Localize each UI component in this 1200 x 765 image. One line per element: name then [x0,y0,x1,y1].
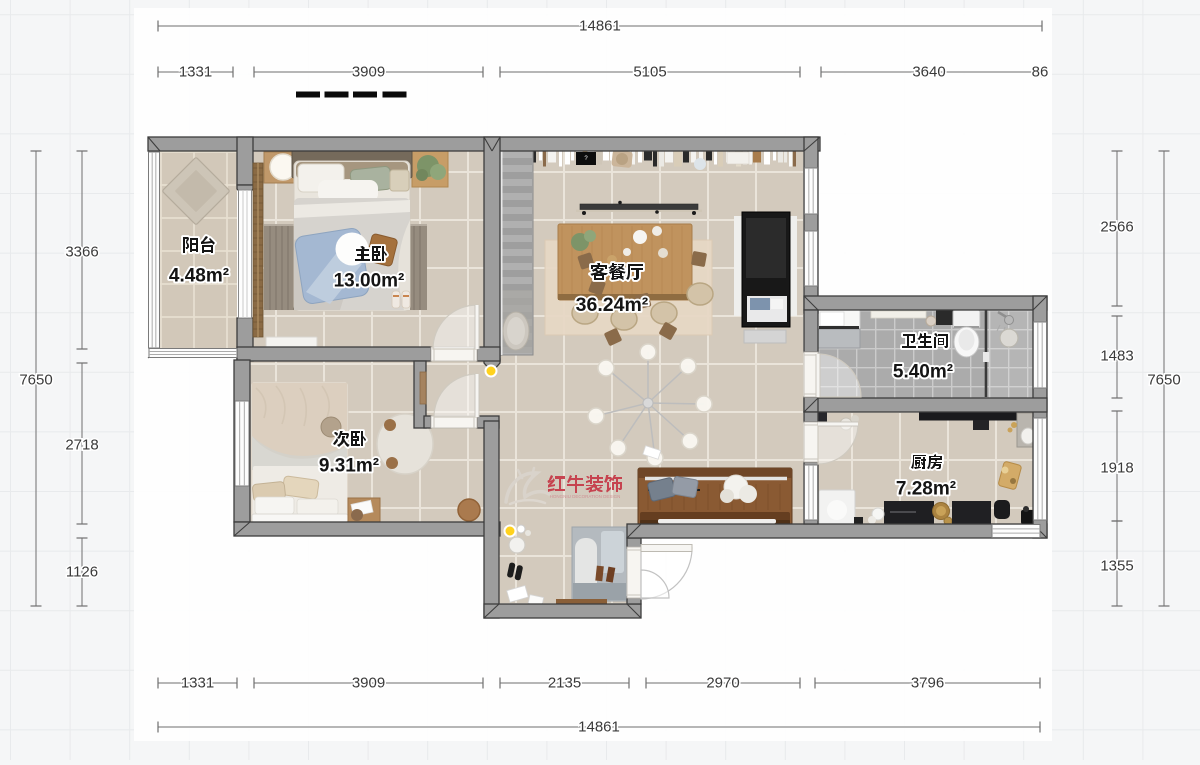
svg-text:7.28m²: 7.28m² [896,479,956,500]
svg-text:2566: 2566 [1100,219,1133,236]
svg-text:1483: 1483 [1100,348,1133,365]
svg-text:7650: 7650 [19,372,52,389]
svg-text:2718: 2718 [65,437,98,454]
svg-text:36.24m²: 36.24m² [576,294,649,316]
svg-text:14861: 14861 [578,719,620,736]
svg-text:1918: 1918 [1100,460,1133,477]
svg-text:2970: 2970 [706,675,739,692]
svg-text:13.00m²: 13.00m² [334,271,405,292]
svg-text:1331: 1331 [181,675,214,692]
svg-text:1126: 1126 [66,564,98,581]
svg-text:1331: 1331 [179,64,212,81]
svg-text:1355: 1355 [1100,558,1133,575]
svg-text:3366: 3366 [65,244,98,261]
svg-text:3909: 3909 [352,675,385,692]
svg-text:5.40m²: 5.40m² [893,362,953,383]
svg-text:7650: 7650 [1147,372,1180,389]
svg-text:4.48m²: 4.48m² [169,266,229,287]
svg-text:3796: 3796 [911,675,944,692]
svg-text:3640: 3640 [912,64,945,81]
svg-text:9.31m²: 9.31m² [319,456,379,477]
svg-text:2135: 2135 [548,675,581,692]
svg-text:HONGNIU DECORATION DESIGN: HONGNIU DECORATION DESIGN [550,494,621,499]
svg-text:86: 86 [1032,64,1049,81]
svg-text:3909: 3909 [352,64,385,81]
svg-text:5105: 5105 [633,64,666,81]
svg-text:14861: 14861 [579,18,621,35]
